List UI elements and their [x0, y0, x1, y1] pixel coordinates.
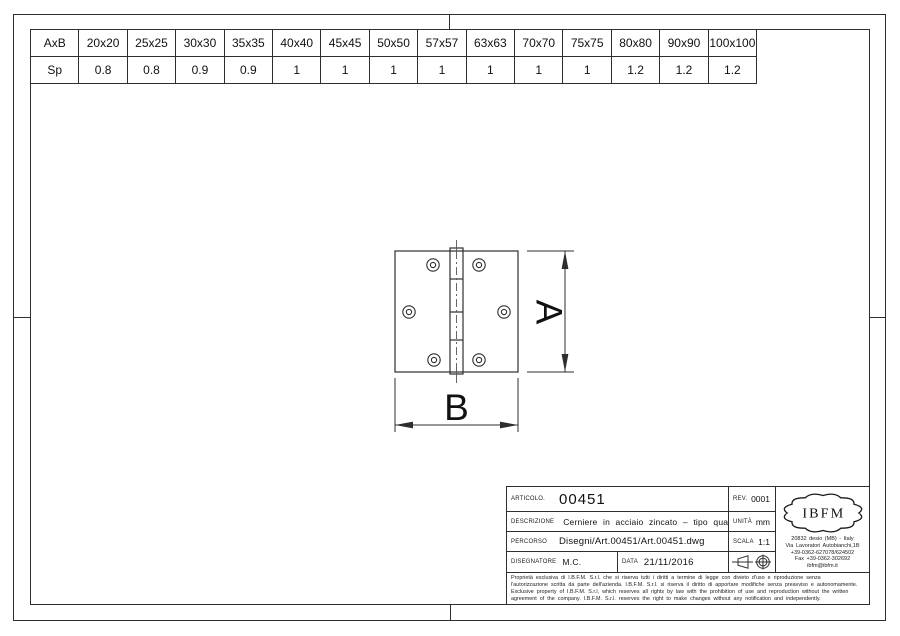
size-table-header-cell: 50x50: [370, 30, 418, 56]
size-table-sp-cell: 1: [273, 57, 321, 84]
dimension-A: A: [527, 251, 574, 372]
size-table-header-cell: 100x100: [709, 30, 756, 56]
size-table-sp-cell: 0.9: [176, 57, 224, 84]
legal-line: Exclusive property of I.B.F.M. S.r.l. wh…: [511, 589, 865, 596]
dim-label-B: B: [444, 387, 469, 428]
address-line: Via Lavoratori Autobianchi,1B: [785, 543, 859, 550]
descrizione-label: DESCRIZIONE: [511, 519, 554, 525]
unita-label: UNITÀ: [733, 519, 752, 525]
size-table-sp-cell: 1: [370, 57, 418, 84]
size-table-header-cell: 40x40: [273, 30, 321, 56]
size-table-header-cell: 70x70: [515, 30, 563, 56]
size-table-sp-cell: 1: [515, 57, 563, 84]
scala-cell: SCALA 1:1: [729, 532, 776, 552]
first-angle-projection-icon: [730, 552, 775, 572]
screw-hole: [498, 306, 510, 318]
size-table-sp-cell: 0.8: [79, 57, 127, 84]
unita-cell: UNITÀ mm: [729, 512, 776, 532]
rev-cell: REV. 0001: [729, 487, 776, 512]
legal-line: agreement of the company. I.B.F.M. S.r.l…: [511, 596, 865, 603]
centering-mark-left: [13, 317, 30, 318]
company-box: IBFM 20832 desio (MB) - ItalyVia Lavorat…: [776, 487, 869, 573]
size-table-header-cell: 63x63: [467, 30, 515, 56]
arrowhead-down-icon: [562, 354, 569, 372]
percorso-cell: PERCORSO Disegni/Art.00451/Art.00451.dwg: [507, 532, 729, 552]
logo-text: IBFM: [802, 505, 845, 521]
size-table-header-cell: AxB: [31, 30, 79, 56]
size-table-sp-cell: 0.8: [128, 57, 176, 84]
centering-mark-bottom: [450, 605, 451, 621]
percorso-label: PERCORSO: [511, 539, 547, 545]
size-table-header-cell: 20x20: [79, 30, 127, 56]
disegnatore-label: DISEGNATORE: [511, 559, 556, 565]
size-table-header-cell: 80x80: [612, 30, 660, 56]
screw-hole: [427, 259, 439, 271]
disegnatore-value: M.C.: [562, 557, 581, 567]
rev-value: 0001: [751, 494, 770, 504]
arrowhead-left-icon: [395, 422, 413, 429]
address-line: +39-0362-627078/624502: [785, 550, 859, 557]
ibfm-logo: IBFM: [778, 491, 868, 535]
articolo-cell: ARTICOLO. 00451: [507, 487, 729, 512]
company-address: 20832 desio (MB) - ItalyVia Lavoratori A…: [785, 536, 859, 570]
articolo-value: 00451: [559, 491, 606, 508]
drawing-sheet: AxB20x2025x2530x3035x3540x4045x4550x5057…: [0, 0, 900, 636]
dim-label-A: A: [529, 300, 570, 325]
size-table: AxB20x2025x2530x3035x3540x4045x4550x5057…: [30, 29, 757, 84]
descrizione-value: Cerniere in acciaio zincato – tipo quadr…: [563, 517, 729, 527]
scala-value: 1:1: [758, 537, 770, 547]
disegnatore-cell: DISEGNATORE M.C.: [507, 552, 618, 572]
arrowhead-right-icon: [500, 422, 518, 429]
size-table-sp-cell: 1: [418, 57, 466, 84]
size-table-sp-cell: 1: [563, 57, 611, 84]
size-table-sp-cell: 0.9: [225, 57, 273, 84]
size-table-header-row: AxB20x2025x2530x3035x3540x4045x4550x5057…: [31, 30, 756, 57]
title-block: ARTICOLO. 00451 REV. 0001 DESCRIZIONE Ce…: [506, 486, 870, 605]
size-table-sp-cell: Sp: [31, 57, 79, 84]
screw-hole: [473, 354, 485, 366]
centering-mark-right: [870, 317, 886, 318]
centering-mark-top: [449, 14, 450, 29]
size-table-sp-cell: 1.2: [612, 57, 660, 84]
screw-hole: [403, 306, 415, 318]
articolo-label: ARTICOLO.: [511, 496, 545, 502]
address-line: Fax +39-0362-302692: [785, 556, 859, 563]
size-table-sp-cell: 1: [321, 57, 369, 84]
legal-notice: Proprietà esclusiva di I.B.F.M. S.r.l. c…: [507, 573, 869, 604]
disegnatore-data-row: DISEGNATORE M.C. DATA 21/11/2016: [507, 552, 729, 573]
size-table-header-cell: 45x45: [321, 30, 369, 56]
hinge-drawing: A B: [360, 228, 580, 443]
size-table-header-cell: 30x30: [176, 30, 224, 56]
size-table-sp-row: Sp0.80.80.90.911111111.21.21.2: [31, 57, 756, 84]
rev-label: REV.: [733, 496, 747, 502]
size-table-sp-cell: 1.2: [709, 57, 756, 84]
screw-hole: [473, 259, 485, 271]
unita-value: mm: [756, 517, 770, 527]
data-cell: DATA 21/11/2016: [618, 552, 728, 572]
data-label: DATA: [622, 559, 638, 565]
size-table-header-cell: 35x35: [225, 30, 273, 56]
size-table-sp-cell: 1: [467, 57, 515, 84]
arrowhead-up-icon: [562, 251, 569, 269]
projection-symbol-cell: [729, 552, 776, 573]
size-table-header-cell: 75x75: [563, 30, 611, 56]
address-line: 20832 desio (MB) - Italy: [785, 536, 859, 543]
descrizione-cell: DESCRIZIONE Cerniere in acciaio zincato …: [507, 512, 729, 532]
legal-line: Proprietà esclusiva di I.B.F.M. S.r.l. c…: [511, 575, 865, 582]
address-line: ibfm@ibfm.it: [785, 563, 859, 570]
legal-line: l'autorizzazione scritta da parte dell'a…: [511, 582, 865, 589]
percorso-value: Disegni/Art.00451/Art.00451.dwg: [559, 536, 705, 547]
data-value: 21/11/2016: [644, 557, 694, 568]
size-table-header-cell: 90x90: [660, 30, 708, 56]
size-table-header-cell: 25x25: [128, 30, 176, 56]
size-table-header-cell: 57x57: [418, 30, 466, 56]
size-table-sp-cell: 1.2: [660, 57, 708, 84]
dimension-B: B: [395, 378, 518, 432]
scala-label: SCALA: [733, 539, 754, 545]
screw-hole: [428, 354, 440, 366]
